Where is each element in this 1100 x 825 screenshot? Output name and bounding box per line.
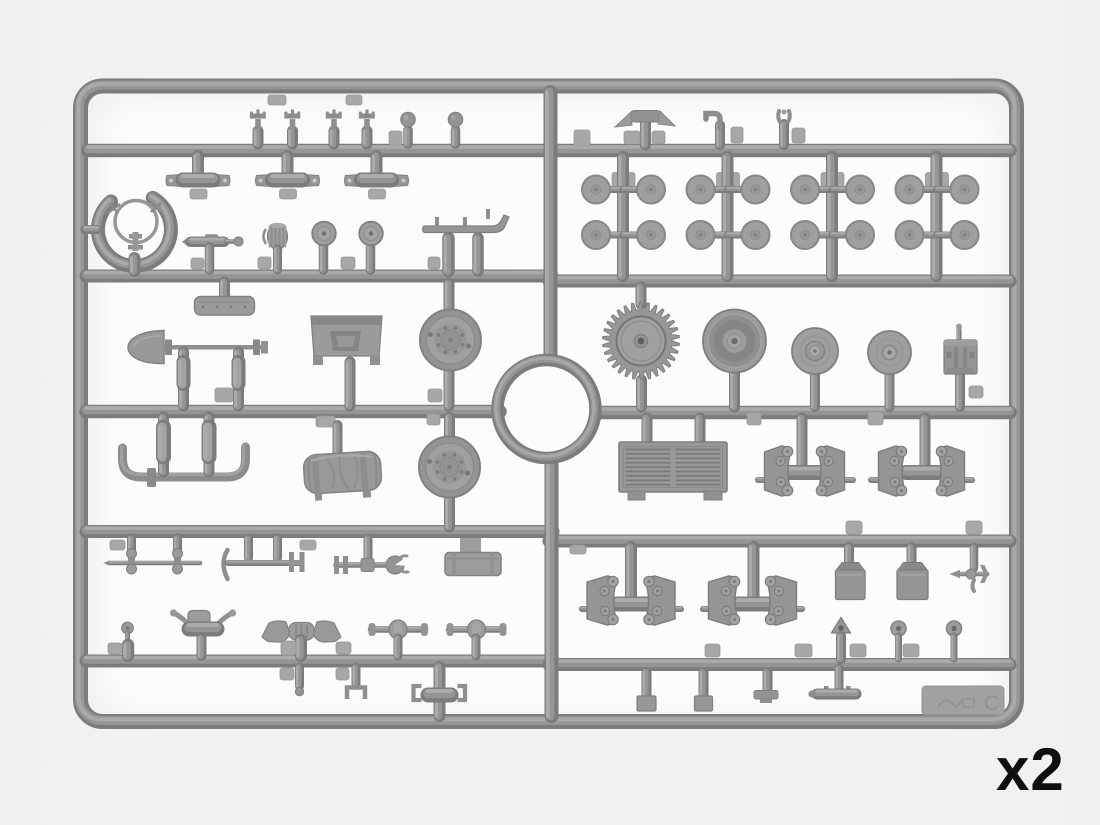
svg-text:x2: x2 bbox=[996, 736, 1065, 803]
svg-text:C: C bbox=[984, 692, 999, 715]
